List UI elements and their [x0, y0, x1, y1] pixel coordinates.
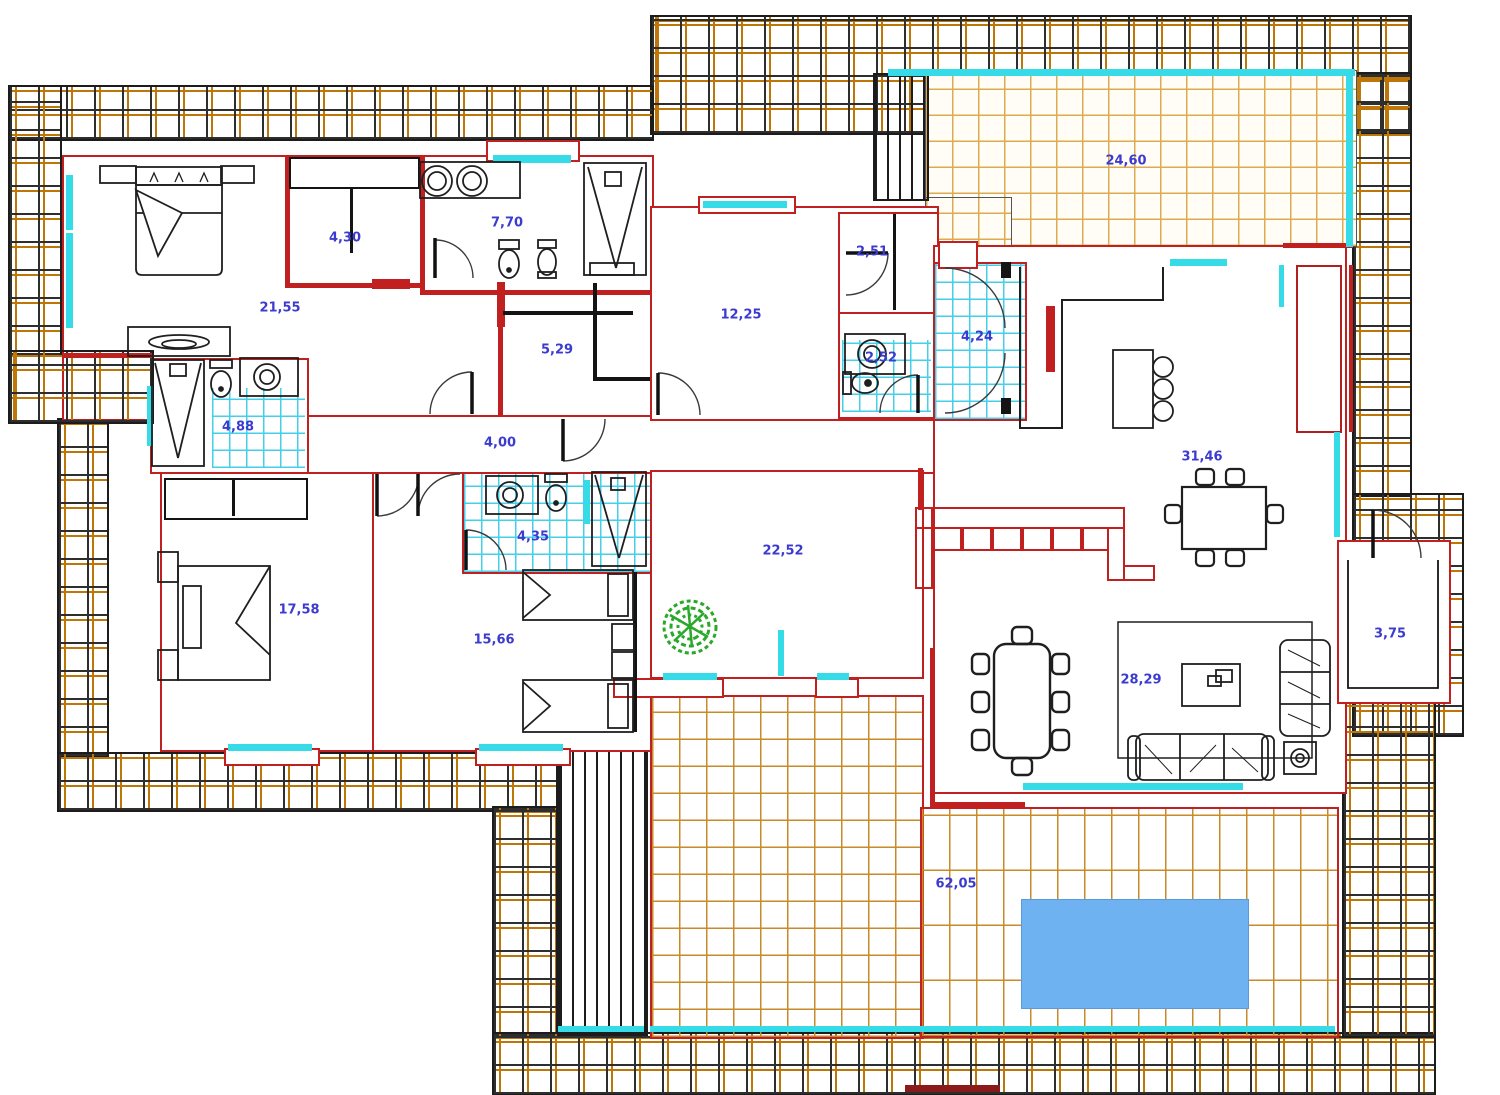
column-marker: [497, 282, 505, 327]
window: [66, 175, 73, 230]
deck-steps: [558, 750, 648, 1036]
area-label: 31,46: [1181, 450, 1222, 465]
storage-wall: [503, 311, 633, 315]
terrace-edge: [1346, 73, 1353, 247]
window: [147, 386, 153, 446]
window: [479, 744, 563, 751]
wardrobe: [164, 478, 308, 520]
area-label: 4,24: [961, 330, 993, 345]
area-label: 2,51: [856, 245, 888, 260]
door-glass: [663, 673, 717, 680]
column-marker: [1046, 306, 1055, 372]
wall: [62, 353, 152, 358]
area-label: 22,52: [762, 544, 803, 559]
closet-shelf: [289, 157, 420, 189]
wall: [930, 648, 935, 807]
terrace-door-step-1: [613, 678, 724, 698]
wardrobe-divider: [232, 478, 235, 516]
window: [703, 201, 787, 208]
wall: [1283, 243, 1353, 248]
window: [493, 155, 571, 163]
window: [1170, 259, 1227, 266]
terrace-left-column-lower: [57, 418, 109, 758]
area-label: 17,58: [278, 603, 319, 618]
area-label: 62,05: [935, 877, 976, 892]
sliding-door: [1023, 783, 1243, 790]
area-label: 5,29: [541, 343, 573, 358]
window: [66, 233, 73, 328]
area-label: 7,70: [491, 216, 523, 231]
floor-plan: 21,55 4,30 7,70 5,29 4,88 4,00 12,25 2,5…: [0, 0, 1500, 1095]
bedroom-divider: [633, 572, 637, 732]
window: [1279, 265, 1284, 307]
area-label: 4,30: [329, 231, 361, 246]
terrace-edge: [650, 1026, 1335, 1032]
terrace-24-steps: [873, 73, 929, 201]
door-glass: [817, 673, 849, 680]
swimming-pool: [1021, 899, 1249, 1009]
room-living-2252: [650, 470, 924, 679]
shower-glass: [584, 480, 590, 524]
glass-partition: [778, 630, 784, 676]
hall-top-landing: [938, 241, 978, 269]
area-label: 15,66: [473, 633, 514, 648]
room-closet-251: [838, 212, 939, 316]
area-label: 24,60: [1105, 154, 1146, 169]
kitchen-pantry: [1296, 265, 1342, 433]
terrace-left-step: [8, 350, 154, 424]
wall: [918, 468, 923, 510]
room-entry-375: [1337, 540, 1451, 704]
pool-terrace-upper: [650, 695, 924, 1039]
area-label: 4,35: [517, 530, 549, 545]
area-label: 12,25: [720, 308, 761, 323]
storage-wall: [593, 311, 597, 381]
area-label: 4,00: [484, 436, 516, 451]
area-label: 28,29: [1120, 673, 1161, 688]
wall: [420, 290, 650, 295]
area-label: 2,52: [865, 351, 897, 366]
room-bath-435: [462, 472, 652, 574]
terrace-edge: [888, 69, 1355, 76]
area-label: 3,75: [1374, 627, 1406, 642]
boundary-marker: [905, 1085, 1000, 1092]
storage-wall: [593, 377, 650, 381]
storage-wall: [593, 283, 597, 311]
column-marker: [372, 279, 410, 289]
wall: [1349, 265, 1353, 432]
area-label: 4,88: [222, 420, 254, 435]
closet-divider: [893, 214, 896, 310]
terrace-mid-column: [492, 806, 558, 1038]
terrace-topleft-band: [8, 85, 654, 141]
window: [1334, 432, 1340, 537]
terrace-edge: [558, 1026, 644, 1032]
wall: [420, 155, 425, 295]
terrace-left-column: [8, 85, 62, 357]
terrace-right-column: [1352, 72, 1412, 497]
area-label: 21,55: [259, 301, 300, 316]
window: [228, 744, 312, 751]
terrace-door-step-2: [815, 678, 859, 698]
terrace-right-lower: [1342, 700, 1436, 1038]
wall: [930, 802, 1025, 807]
